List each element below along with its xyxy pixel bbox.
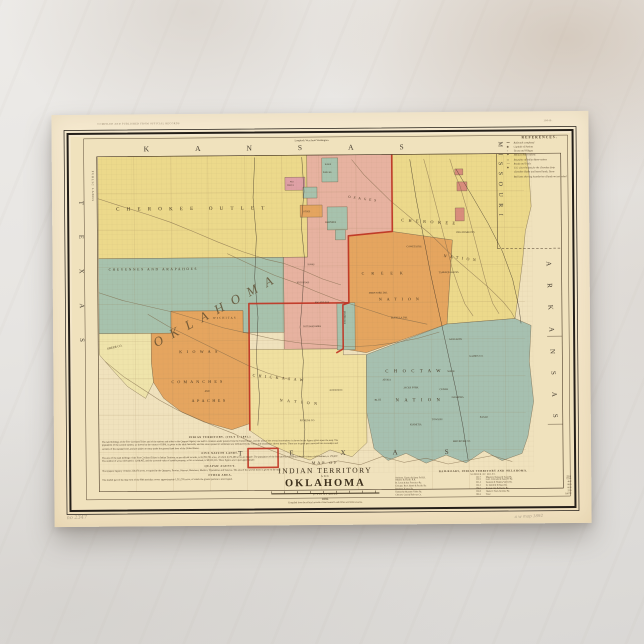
references-legend: REFERENCES. ━━Railroads completed◉Capita… [507,135,573,179]
map-label: OTOES [303,211,311,213]
map-label: WADE [447,370,455,373]
map-label: KAWS [325,163,332,166]
map-label: TOWSON [432,418,443,421]
map-label: TAHLEQUAH DIS. [439,271,460,274]
railroad-miles: 104.6 [476,494,481,497]
map-label: NATION [396,397,446,402]
map-label: TEXAS [77,201,85,372]
township-grid [97,153,534,474]
railroad-name: Total [486,494,490,497]
map-label: RED RIVER CO. [453,440,471,443]
postcard: KANSASMISSOURIARKANSASTEXASTEXASPUBLIC L… [51,111,591,527]
map-label: POTTAWATOMIES [303,325,322,328]
railroad-table-left-column: Atchison, Topeka & Santa Fe R.R.121.7Atl… [395,476,481,497]
map-label: KIOWAS [179,349,222,354]
map-label: SANS BOIS [449,338,462,341]
pencil-note-left: no 2347 [66,515,87,522]
railroad-name: Choctaw Coal & Railway Co. [395,495,421,498]
map-label: WICHITAS [213,317,237,320]
title-indian-territory: INDIAN TERRITORY [257,465,393,475]
legend-entry: Red lines showing boundaries of lands no… [507,175,573,180]
note-paragraph: The land holdings of the Five Civilized … [102,439,338,451]
map-label: PERCES [287,185,294,187]
imprint-top-right: 18049. [543,119,552,122]
legend-symbol [507,175,514,179]
railroad-table-right-column: Missouri, Kansas & Texas Ry.255.1Gulf, C… [486,476,572,497]
map-label: PAWNEES [325,221,337,224]
map-label: PUBLIC LANDS [91,171,94,202]
map-label: GAINES CO. [469,355,483,358]
map-label: PONCAS [323,171,332,174]
legend-entries: ━━Railroads completed◉Capitals of Nation… [507,141,573,180]
map-label: EAGLE [480,416,489,419]
map-label: NATION [379,296,424,301]
map-label: COWETA DIS. [406,245,422,248]
map-label: KICKAPOOS [297,281,310,284]
map-label: DELAWARE DIS. [456,231,475,234]
map-label: CHEYENNES AND ARAPAHOES [109,267,199,272]
imprint-top-left: COMPILED AND PUBLISHED FROM OFFICIAL REC… [97,122,179,126]
map-label: APACHES [192,398,228,403]
map-label: KIAMITIA [410,423,422,426]
map-label: PONTOTOC [330,389,344,392]
map-label: ATOKA [382,378,391,381]
map-label: NASHOBA [452,396,464,399]
railroad-miles: 1,607.2 [565,493,572,496]
map-label: AND [205,390,210,393]
map-label: PICKENS CO. [300,419,316,422]
map-label: CHOCTAW [385,368,446,373]
map-label: Longitude West from Washington. [295,139,330,142]
map-label: CEDAR [440,388,449,391]
title-oklahoma: OKLAHOMA [257,477,393,489]
map-label: IOWAS [308,263,316,266]
map-label: SAC AND FOX [315,301,330,304]
map-label: MISSOURI [497,142,504,223]
map-label: CREEK [362,270,410,275]
map-label: COMANCHES [171,379,225,384]
map-label: DEEP FORK DIS. [369,291,388,294]
legend-title: REFERENCES. [507,135,573,140]
legend-text: Red lines showing boundaries of lands no… [514,175,567,180]
title-cartouche: MAP OF INDIAN TERRITORY AND OKLAHOMA SCA… [257,459,393,504]
railroad-table: RAILROADS, INDIAN TERRITORY AND OKLAHOMA… [395,469,571,498]
map-label: BLUE [375,399,382,402]
map-label: EUFAULA DIS. [391,316,408,319]
map-label: SEMINOLES [343,311,346,325]
map-label: JACKS FORK [404,386,419,389]
